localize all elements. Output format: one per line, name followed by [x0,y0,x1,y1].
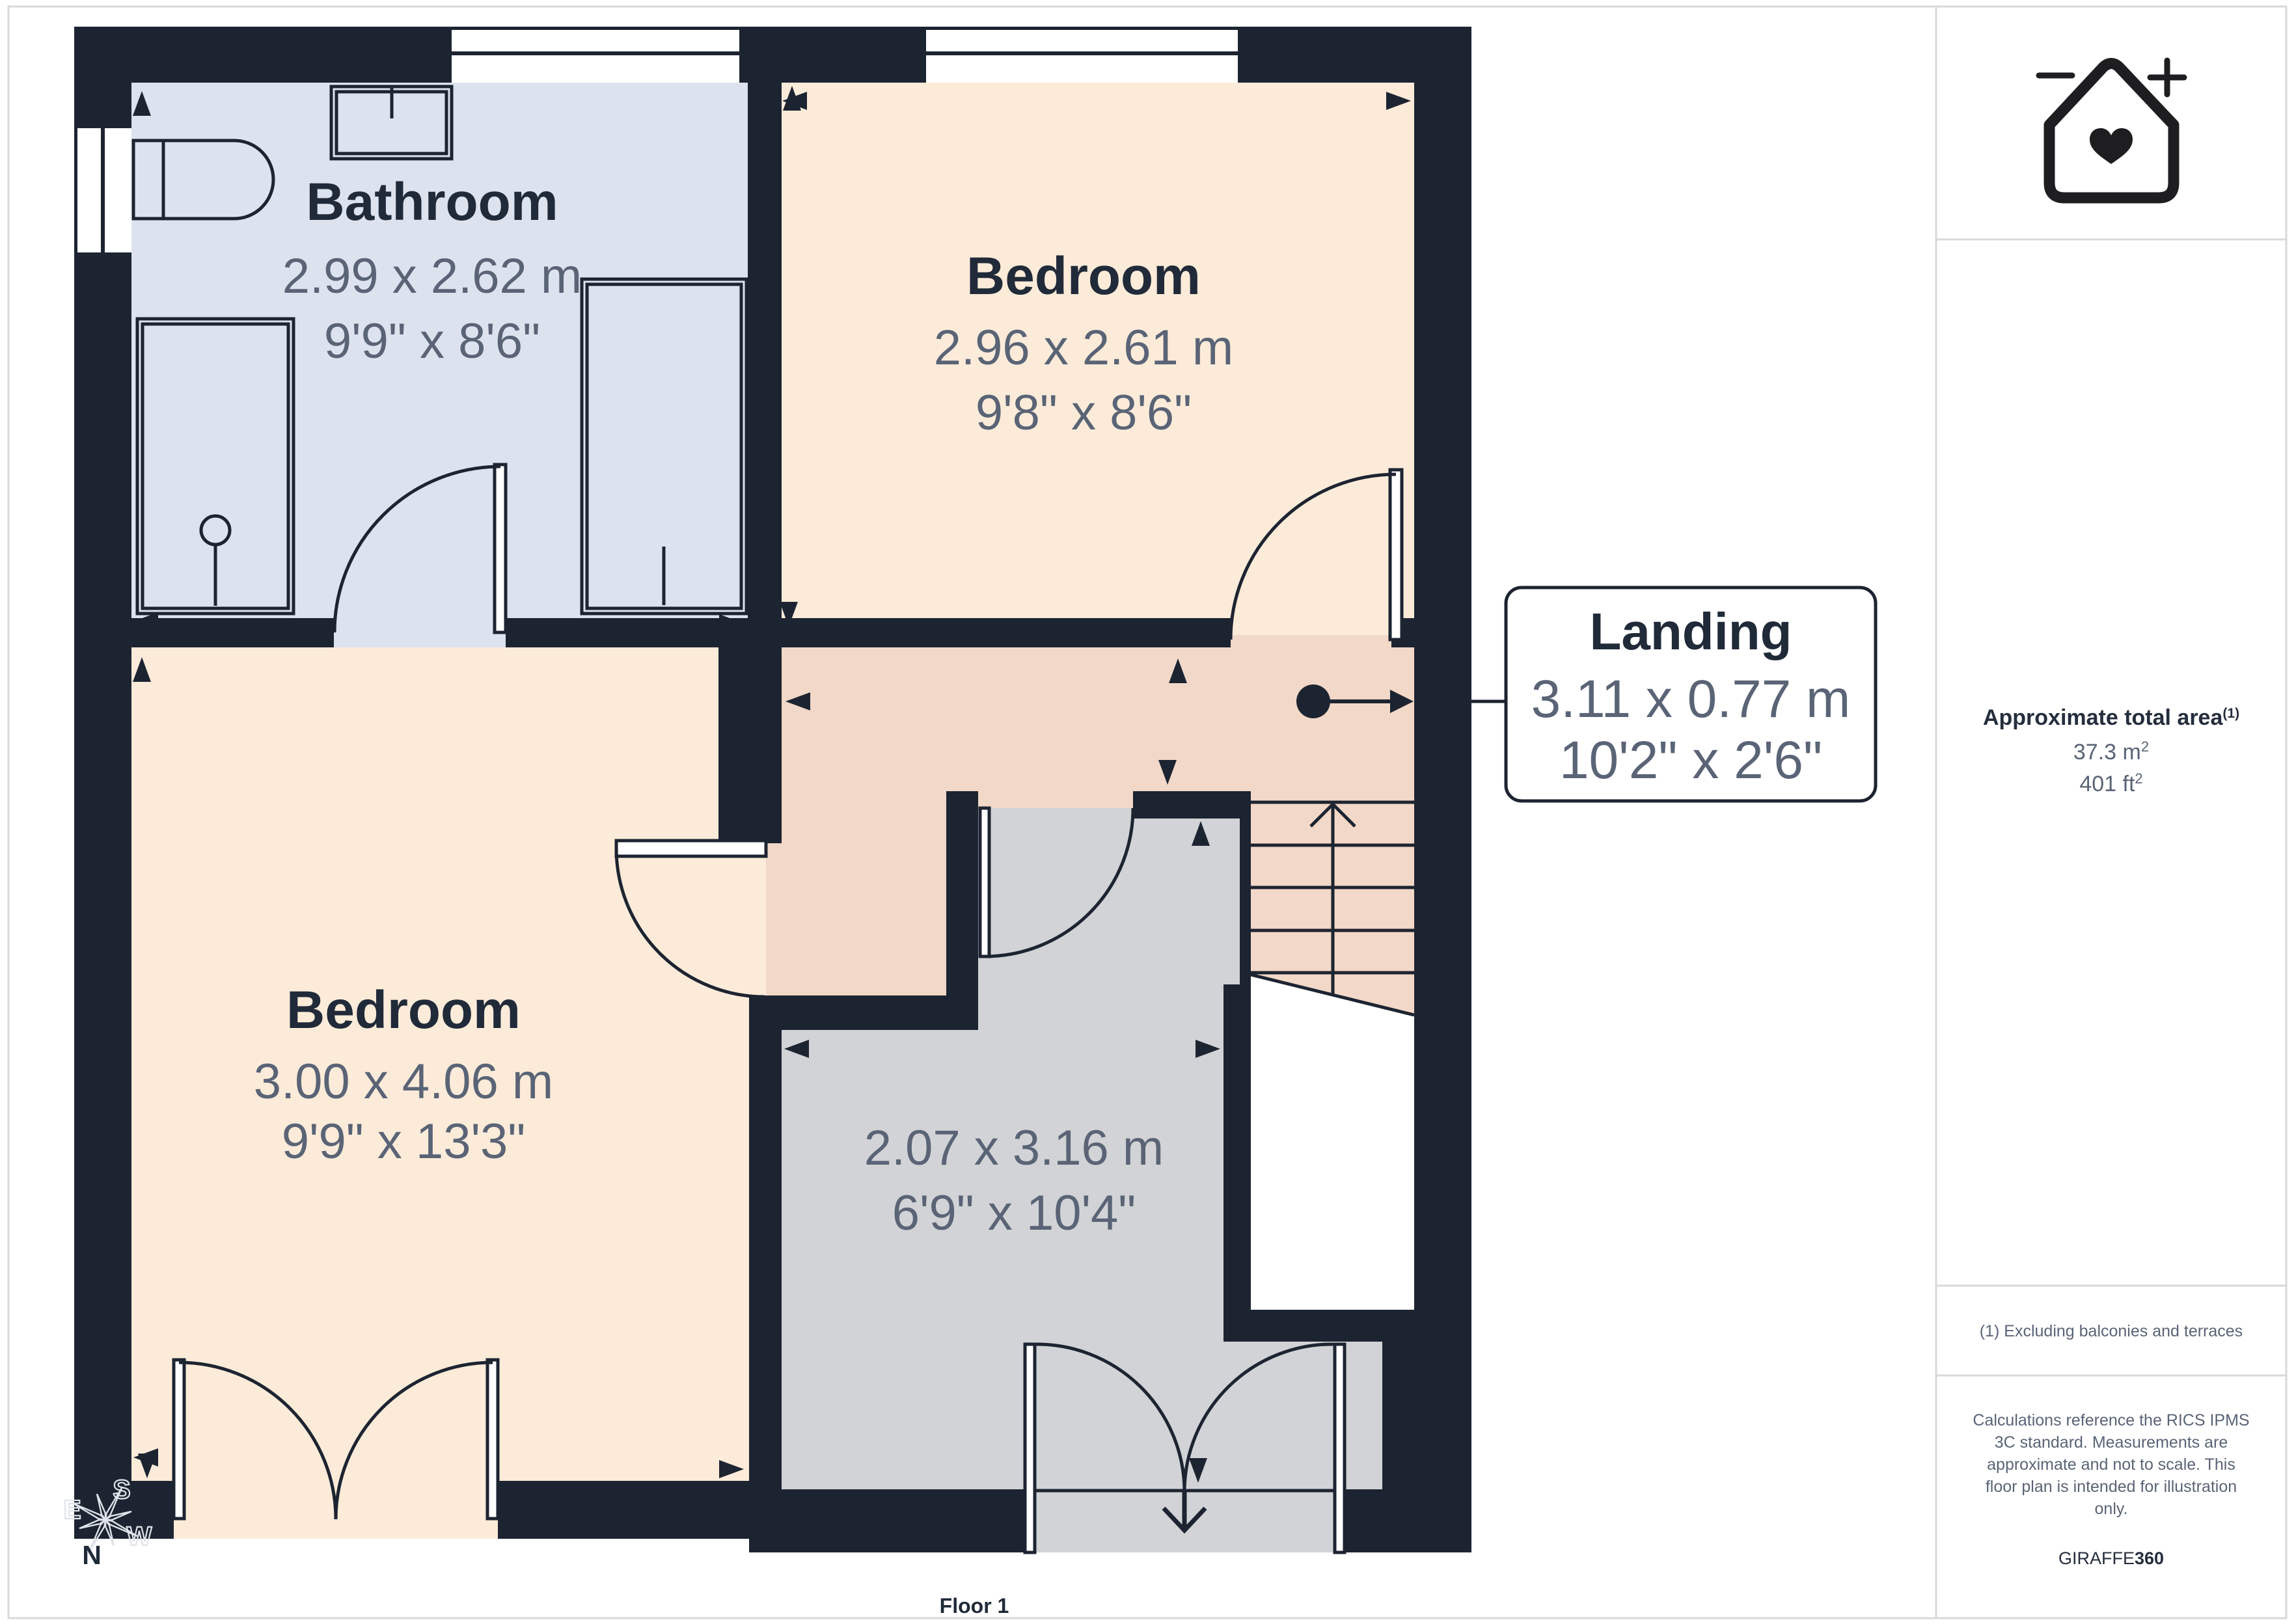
svg-text:E: E [63,1495,81,1524]
svg-text:9'9" x 8'6": 9'9" x 8'6" [324,314,540,369]
svg-text:3C standard. Measurements are: 3C standard. Measurements are [1995,1433,2228,1452]
svg-text:9'8" x 8'6": 9'8" x 8'6" [976,385,1192,440]
svg-text:Approximate total area(1): Approximate total area(1) [1983,705,2239,730]
svg-text:Floor 1: Floor 1 [940,1594,1009,1617]
svg-text:10'2" x 2'6": 10'2" x 2'6" [1559,731,1822,790]
svg-text:3.00 x 4.06 m: 3.00 x 4.06 m [254,1054,554,1109]
svg-text:Bedroom: Bedroom [966,247,1201,306]
svg-text:6'9" x 10'4": 6'9" x 10'4" [892,1185,1136,1241]
svg-text:Landing: Landing [1589,602,1792,660]
svg-text:37.3 m2: 37.3 m2 [2073,738,2149,765]
svg-text:only.: only. [2095,1500,2128,1518]
svg-text:floor plan is intended for ill: floor plan is intended for illustration [1986,1478,2237,1496]
svg-text:3.11 x 0.77 m: 3.11 x 0.77 m [1531,670,1851,729]
svg-text:2.96 x 2.61 m: 2.96 x 2.61 m [934,320,1234,375]
svg-text:(1) Excluding balconies and te: (1) Excluding balconies and terraces [1980,1322,2243,1340]
svg-text:GIRAFFE360: GIRAFFE360 [2058,1549,2164,1568]
svg-text:Calculations reference the RIC: Calculations reference the RICS IPMS [1973,1411,2249,1429]
svg-text:2.99 x 2.62 m: 2.99 x 2.62 m [282,249,582,304]
svg-text:Bedroom: Bedroom [286,981,521,1040]
svg-text:Bathroom: Bathroom [306,172,558,232]
svg-text:approximate and not to scale.: approximate and not to scale. This [1987,1455,2235,1474]
svg-text:W: W [127,1521,152,1551]
svg-text:9'9" x 13'3": 9'9" x 13'3" [282,1114,526,1169]
svg-text:S: S [113,1474,130,1504]
svg-text:2.07 x 3.16 m: 2.07 x 3.16 m [864,1120,1164,1176]
svg-text:401 ft2: 401 ft2 [2079,770,2142,797]
svg-text:N: N [82,1540,102,1570]
